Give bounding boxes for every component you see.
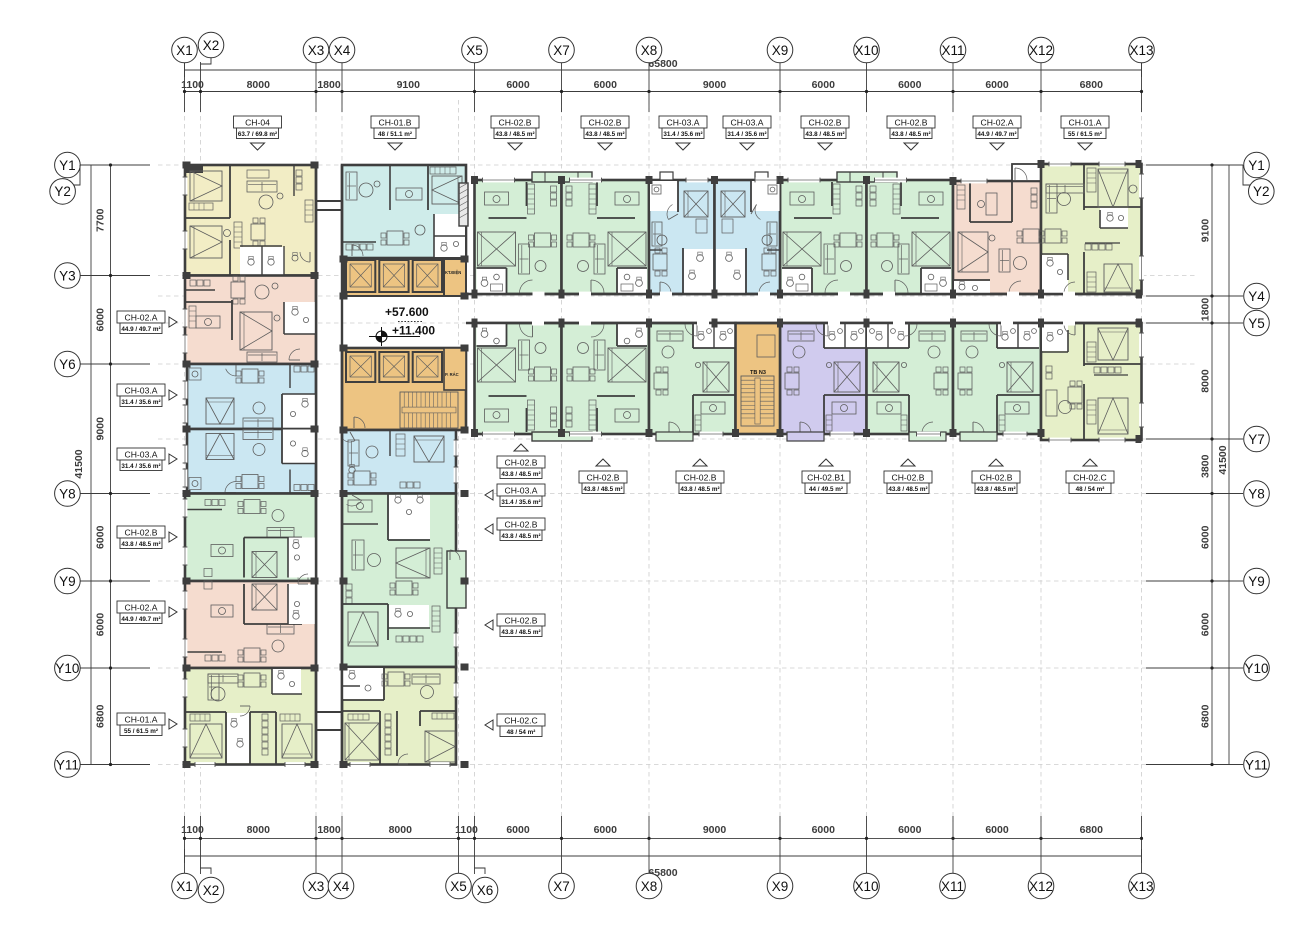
svg-text:X1: X1 [176,43,193,58]
svg-text:6000: 6000 [985,79,1009,91]
svg-text:CH-02.B: CH-02.B [125,528,158,538]
svg-text:CH-03.A: CH-03.A [125,386,158,396]
svg-text:6000: 6000 [1200,613,1212,637]
svg-text:43.8 / 48.5 m²: 43.8 / 48.5 m² [805,131,844,138]
svg-text:48 / 54 m²: 48 / 54 m² [1076,486,1105,493]
svg-text:CH-02.B: CH-02.B [892,473,925,483]
svg-text:X1: X1 [176,879,193,894]
svg-text:Y11: Y11 [56,757,79,772]
svg-text:6000: 6000 [812,79,836,91]
svg-text:1100: 1100 [181,79,204,91]
svg-text:43.8 / 48.5 m²: 43.8 / 48.5 m² [888,486,927,493]
svg-text:1800: 1800 [1200,298,1212,322]
svg-text:CH-02.A: CH-02.A [981,118,1014,128]
svg-text:6000: 6000 [506,824,530,836]
svg-text:3800: 3800 [1200,454,1212,478]
svg-text:X10: X10 [854,43,878,58]
svg-text:6000: 6000 [594,824,618,836]
svg-text:Y1: Y1 [59,158,76,173]
svg-text:CH-02.B: CH-02.B [505,520,538,530]
svg-text:41500: 41500 [1217,445,1229,474]
svg-text:CH-02.C: CH-02.C [1073,473,1106,483]
svg-text:6000: 6000 [898,824,922,836]
svg-text:X12: X12 [1029,43,1053,58]
svg-text:6000: 6000 [506,79,530,91]
svg-text:CH-03.A: CH-03.A [731,118,764,128]
svg-text:8000: 8000 [389,824,413,836]
svg-text:48 / 51.1 m²: 48 / 51.1 m² [378,131,412,138]
svg-text:6000: 6000 [594,79,618,91]
svg-text:9000: 9000 [703,79,727,91]
svg-text:CH-02.B: CH-02.B [505,458,538,468]
svg-text:CH-02.B: CH-02.B [505,616,538,626]
svg-text:Y7: Y7 [1248,432,1265,447]
svg-text:X6: X6 [477,883,494,898]
svg-text:6800: 6800 [1200,704,1212,728]
svg-text:CH-02.B: CH-02.B [895,118,928,128]
svg-text:X9: X9 [772,43,789,58]
svg-text:6000: 6000 [812,824,836,836]
svg-text:31.4 / 35.6 m²: 31.4 / 35.6 m² [501,499,540,506]
svg-text:55 / 61.5 m²: 55 / 61.5 m² [1068,131,1102,138]
svg-text:CH-03.A: CH-03.A [125,450,158,460]
svg-text:Y9: Y9 [59,574,76,589]
svg-text:X13: X13 [1129,43,1153,58]
svg-text:Y8: Y8 [1248,486,1265,501]
svg-text:1800: 1800 [317,824,341,836]
svg-text:43.8 / 48.5 m²: 43.8 / 48.5 m² [680,486,719,493]
svg-text:X12: X12 [1029,879,1053,894]
svg-text:CH-02.B1: CH-02.B1 [807,473,845,483]
svg-text:X7: X7 [553,43,570,58]
svg-text:KT.ĐIỆN: KT.ĐIỆN [445,270,461,275]
svg-text:44 / 49.5 m²: 44 / 49.5 m² [809,486,843,493]
svg-text:CH-03.A: CH-03.A [505,486,538,496]
svg-text:9100: 9100 [397,79,421,91]
svg-text:X7: X7 [553,879,570,894]
svg-text:6000: 6000 [95,525,107,549]
svg-text:TB N3: TB N3 [750,370,766,376]
svg-text:Y2: Y2 [54,184,71,199]
svg-text:44.9 / 49.7 m²: 44.9 / 49.7 m² [977,131,1016,138]
svg-text:CH-02.C: CH-02.C [504,716,537,726]
svg-text:9100: 9100 [1200,219,1212,243]
svg-text:CH-02.B: CH-02.B [980,473,1013,483]
svg-text:Y2: Y2 [1253,184,1270,199]
svg-text:6000: 6000 [898,79,922,91]
svg-text:44.9 / 49.7 m²: 44.9 / 49.7 m² [121,616,160,623]
svg-text:1100: 1100 [455,824,478,836]
svg-text:+57.600: +57.600 [385,305,429,319]
svg-text:41500: 41500 [73,449,85,478]
svg-text:X4: X4 [333,879,350,894]
svg-text:X11: X11 [941,879,964,894]
svg-text:P. RÁC: P. RÁC [445,372,459,377]
svg-text:CH-02.B: CH-02.B [587,473,620,483]
svg-text:CH-04: CH-04 [245,118,270,128]
svg-text:CH-01.A: CH-01.A [125,715,158,725]
svg-text:48 / 54 m²: 48 / 54 m² [507,729,536,736]
svg-text:CH-02.B: CH-02.B [684,473,717,483]
svg-text:X11: X11 [941,43,964,58]
svg-text:43.8 / 48.5 m²: 43.8 / 48.5 m² [583,486,622,493]
svg-text:6800: 6800 [1080,79,1104,91]
svg-text:Y1: Y1 [1248,158,1265,173]
svg-text:8000: 8000 [247,79,271,91]
svg-text:6800: 6800 [95,704,107,728]
svg-text:+11.400: +11.400 [392,324,435,338]
svg-text:CH-02.B: CH-02.B [589,118,622,128]
svg-text:X5: X5 [466,43,483,58]
svg-text:Y10: Y10 [55,661,79,676]
svg-text:6800: 6800 [1080,824,1104,836]
svg-text:CH-02.B: CH-02.B [499,118,532,128]
svg-text:31.4 / 35.6 m²: 31.4 / 35.6 m² [121,463,160,470]
svg-text:Y3: Y3 [59,268,76,283]
svg-text:55 / 61.5 m²: 55 / 61.5 m² [124,728,158,735]
svg-text:Y5: Y5 [1248,316,1265,331]
svg-text:43.8 / 48.5 m²: 43.8 / 48.5 m² [501,533,540,540]
svg-text:43.8 / 48.5 m²: 43.8 / 48.5 m² [121,541,160,548]
svg-text:X9: X9 [772,879,789,894]
svg-text:X10: X10 [854,879,878,894]
svg-text:Y8: Y8 [59,486,76,501]
svg-text:CH-03.A: CH-03.A [667,118,700,128]
svg-text:Y6: Y6 [59,357,76,372]
svg-text:Y10: Y10 [1244,661,1268,676]
svg-text:6000: 6000 [95,613,107,637]
svg-text:31.4 / 35.6 m²: 31.4 / 35.6 m² [121,399,160,406]
svg-text:8000: 8000 [247,824,271,836]
svg-text:1800: 1800 [317,79,341,91]
svg-text:6000: 6000 [1200,525,1212,549]
svg-text:8000: 8000 [1200,369,1212,393]
svg-text:X13: X13 [1129,879,1153,894]
svg-text:CH-01.B: CH-01.B [379,118,412,128]
svg-text:Y9: Y9 [1248,574,1265,589]
svg-text:CH-02.A: CH-02.A [125,313,158,323]
svg-text:CH-02.A: CH-02.A [125,603,158,613]
svg-text:43.8 / 48.5 m²: 43.8 / 48.5 m² [495,131,534,138]
svg-text:CH-01.A: CH-01.A [1069,118,1102,128]
svg-text:63.7 / 69.8 m²: 63.7 / 69.8 m² [238,131,277,138]
svg-text:31.4 / 35.6 m²: 31.4 / 35.6 m² [663,131,702,138]
svg-text:1100: 1100 [181,824,204,836]
svg-text:X5: X5 [450,879,467,894]
svg-text:X3: X3 [308,879,325,894]
svg-text:X8: X8 [641,879,658,894]
svg-text:CH-02.B: CH-02.B [809,118,842,128]
svg-text:X4: X4 [334,43,351,58]
svg-text:9000: 9000 [703,824,727,836]
svg-text:43.8 / 48.5 m²: 43.8 / 48.5 m² [585,131,624,138]
svg-text:7700: 7700 [95,208,107,232]
svg-text:Y4: Y4 [1248,289,1265,304]
svg-text:43.8 / 48.5 m²: 43.8 / 48.5 m² [891,131,930,138]
svg-text:44.9 / 49.7 m²: 44.9 / 49.7 m² [121,326,160,333]
svg-text:31.4 / 35.6 m²: 31.4 / 35.6 m² [727,131,766,138]
svg-text:X2: X2 [203,38,220,53]
svg-text:43.8 / 48.5 m²: 43.8 / 48.5 m² [976,486,1015,493]
svg-text:X3: X3 [308,43,325,58]
svg-text:Y11: Y11 [1245,757,1268,772]
svg-text:43.8 / 48.5 m²: 43.8 / 48.5 m² [501,629,540,636]
svg-text:9000: 9000 [95,417,107,441]
svg-text:6000: 6000 [95,308,107,332]
svg-text:X8: X8 [641,43,658,58]
svg-text:6000: 6000 [985,824,1009,836]
svg-text:X2: X2 [203,883,220,898]
svg-text:43.8 / 48.5 m²: 43.8 / 48.5 m² [501,471,540,478]
